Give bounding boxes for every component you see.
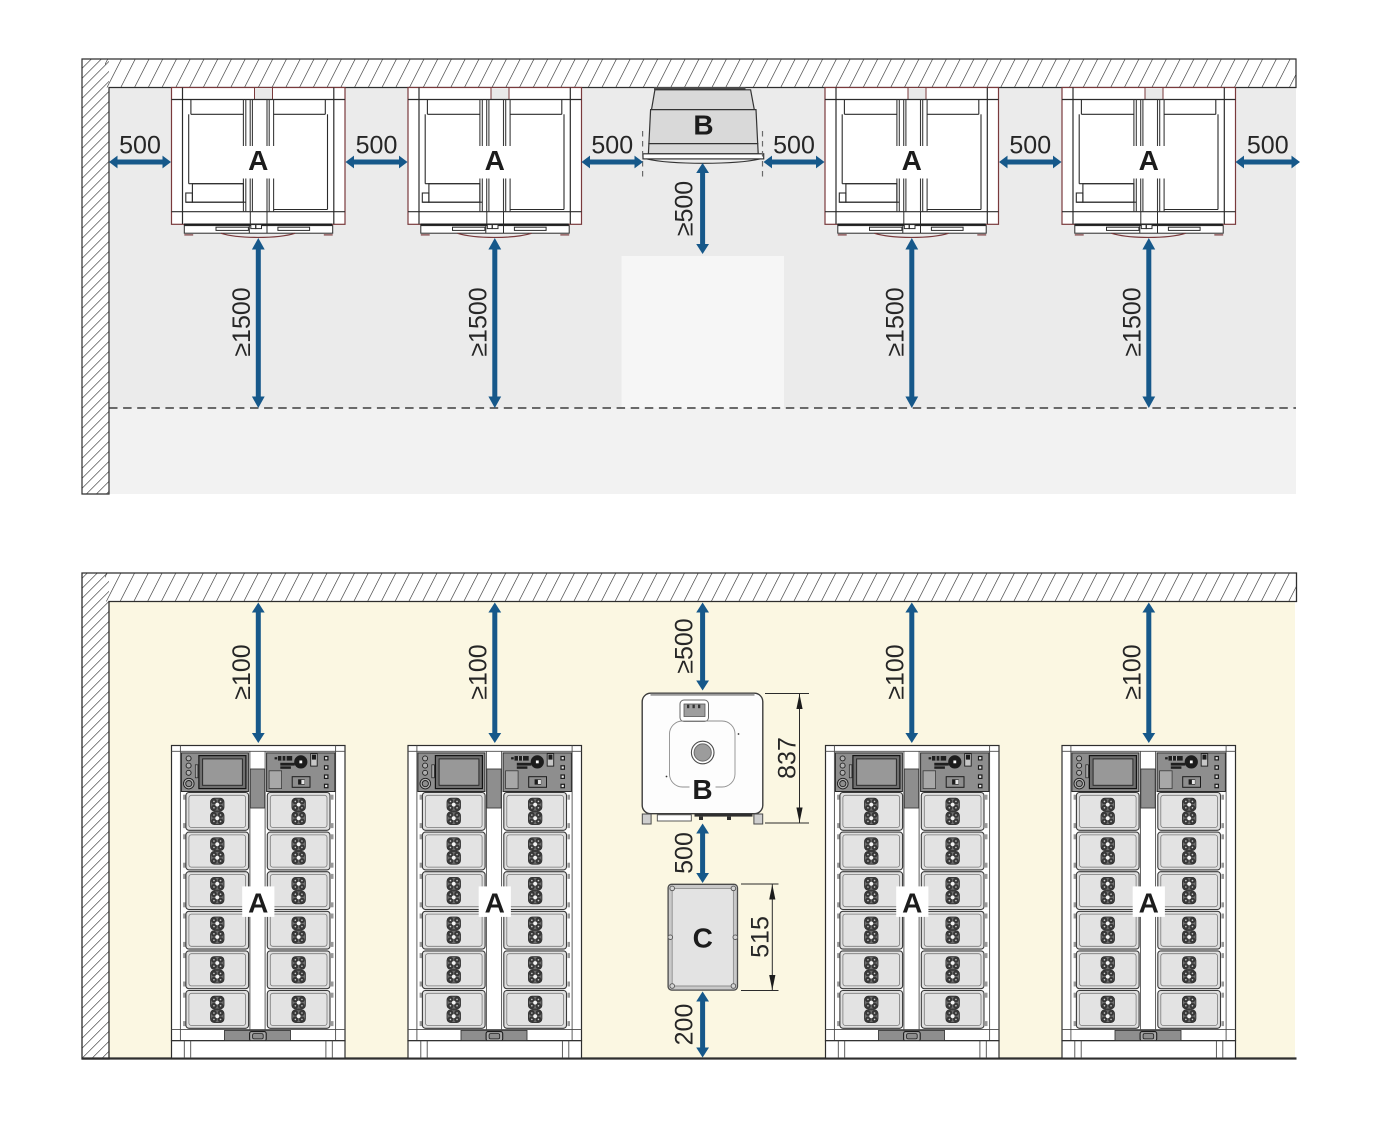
svg-text:500: 500	[591, 132, 633, 160]
svg-text:A: A	[1139, 145, 1159, 176]
svg-text:≥100: ≥100	[228, 644, 256, 699]
svg-text:500: 500	[1009, 132, 1051, 160]
svg-text:500: 500	[356, 132, 398, 160]
svg-text:B: B	[692, 774, 712, 805]
svg-text:500: 500	[1247, 132, 1289, 160]
svg-text:500: 500	[773, 132, 815, 160]
svg-text:≥100: ≥100	[464, 644, 492, 699]
svg-text:A: A	[902, 145, 922, 176]
svg-text:≥1500: ≥1500	[1118, 287, 1146, 356]
svg-text:A: A	[485, 145, 505, 176]
svg-text:200: 200	[671, 1004, 699, 1046]
svg-text:C: C	[693, 922, 713, 953]
svg-text:≥100: ≥100	[881, 644, 909, 699]
svg-text:B: B	[693, 110, 713, 141]
svg-text:A: A	[248, 145, 268, 176]
svg-text:≥100: ≥100	[1118, 644, 1146, 699]
svg-text:≥1500: ≥1500	[464, 287, 492, 356]
svg-text:≥500: ≥500	[671, 181, 699, 236]
svg-text:500: 500	[671, 832, 699, 874]
svg-text:≥500: ≥500	[671, 618, 699, 673]
svg-text:837: 837	[774, 737, 802, 779]
svg-text:≥1500: ≥1500	[228, 287, 256, 356]
svg-text:≥1500: ≥1500	[881, 287, 909, 356]
svg-text:500: 500	[119, 132, 161, 160]
svg-text:515: 515	[747, 916, 775, 958]
